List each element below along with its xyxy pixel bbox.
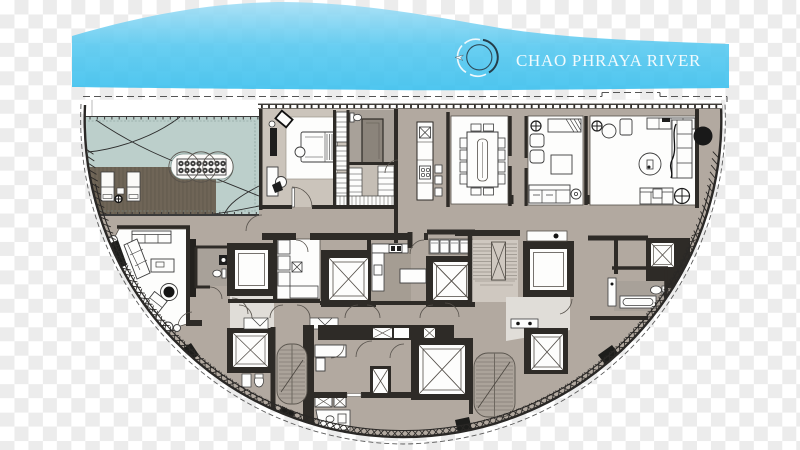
svg-text:CHAO PHRAYA RIVER: CHAO PHRAYA RIVER — [516, 51, 701, 70]
